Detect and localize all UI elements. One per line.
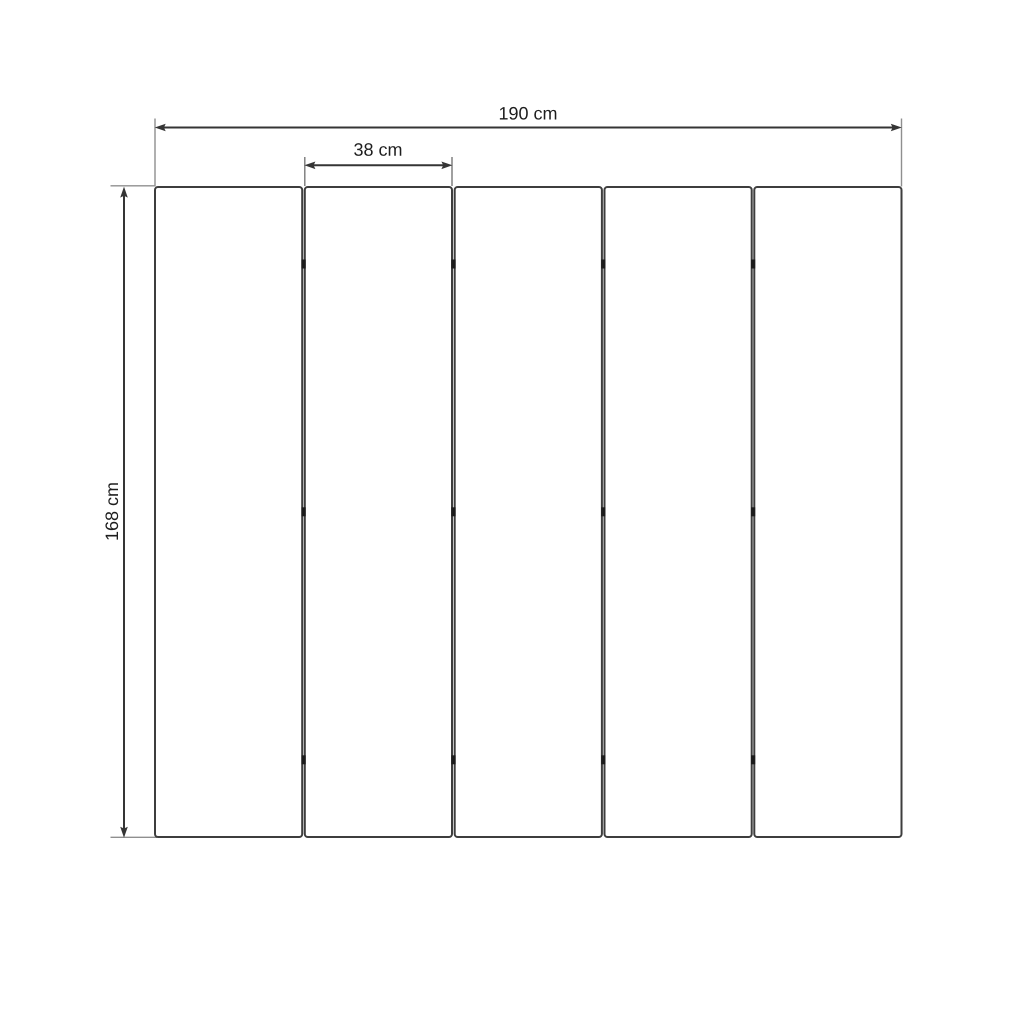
svg-text:168 cm: 168 cm bbox=[102, 482, 122, 541]
svg-text:38 cm: 38 cm bbox=[353, 140, 402, 160]
svg-text:190 cm: 190 cm bbox=[498, 103, 557, 123]
